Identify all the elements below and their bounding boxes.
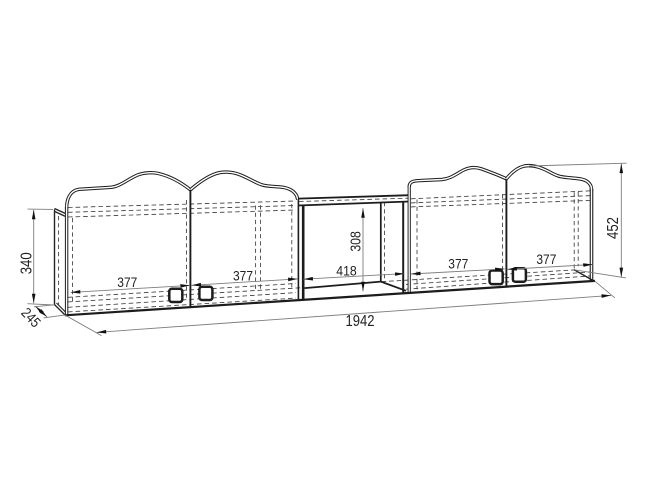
svg-text:377: 377 <box>233 267 253 283</box>
svg-text:418: 418 <box>336 263 357 279</box>
svg-text:377: 377 <box>117 274 137 290</box>
svg-text:1942: 1942 <box>346 313 375 330</box>
svg-text:377: 377 <box>536 251 556 267</box>
svg-text:340: 340 <box>18 252 35 274</box>
svg-text:452: 452 <box>605 217 622 239</box>
svg-text:308: 308 <box>349 231 365 252</box>
svg-text:377: 377 <box>448 256 468 272</box>
